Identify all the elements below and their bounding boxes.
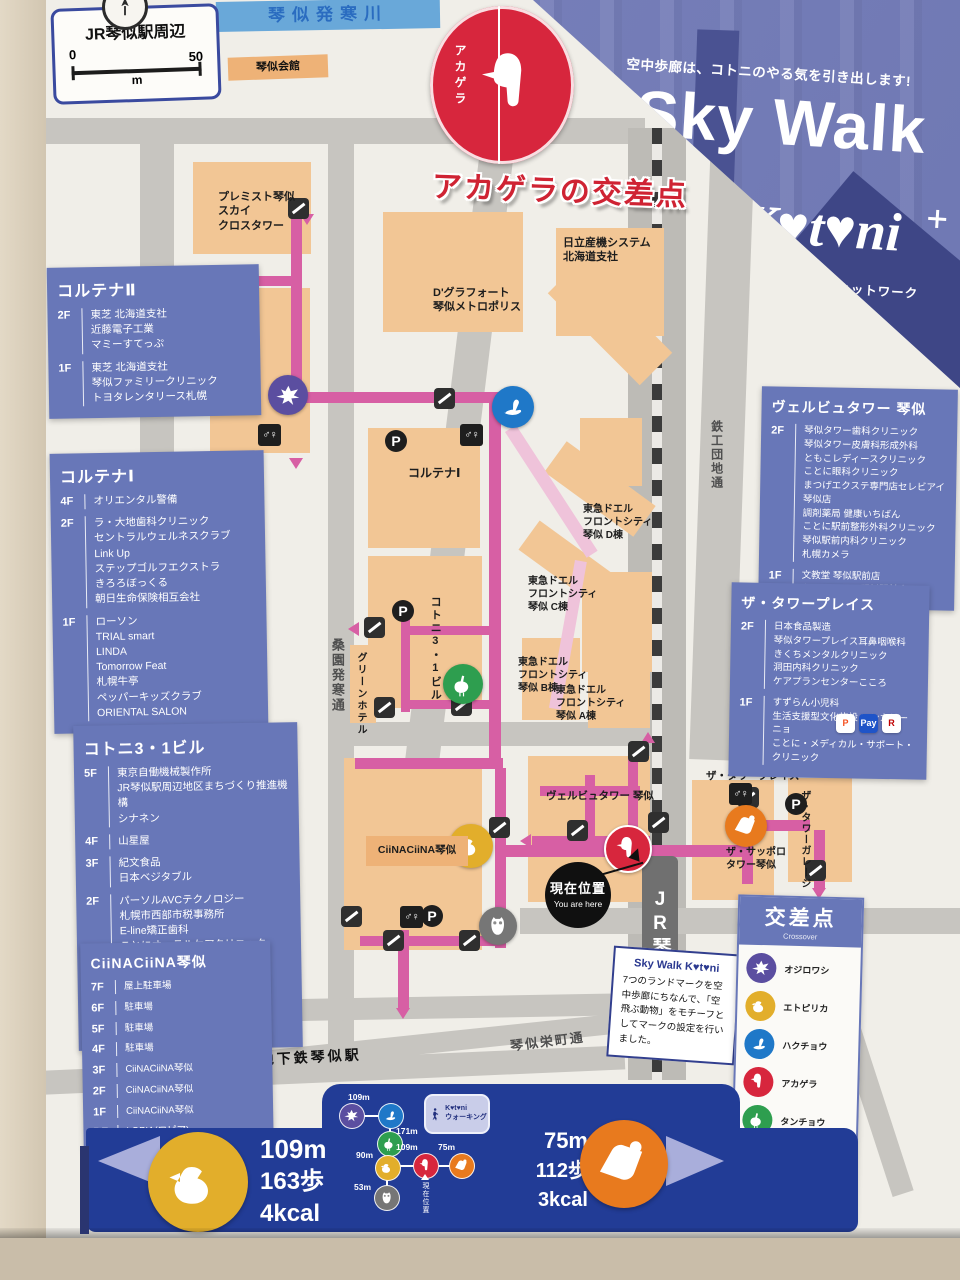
tenant-list: 紀文食品日本ベジタブル [109, 855, 192, 887]
directory-floor-row: 1F東芝 北海道支社琴似ファミリークリニックトヨタレンタリース札幌 [58, 358, 251, 407]
restroom-icon: ♂♀ [729, 783, 752, 805]
tenant-name: ORIENTAL SALON [97, 704, 202, 721]
floor-label: 2F [61, 517, 87, 609]
footer-left-stats: 109m 163歩 4kcal [260, 1136, 327, 1226]
tenant-name: CiiNACiiNA琴似 [125, 1062, 193, 1077]
directory-title: コルテナⅠ [60, 460, 254, 487]
escalator-icon [489, 817, 510, 838]
directory-floor-row: 3F紀文食品日本ベジタブル [85, 853, 290, 887]
street-tekko: 鉄工団地通 [708, 420, 724, 490]
directory-floor-row: 2F日本食品製造琴似タワープレイス耳鼻咽喉科きくちメンタルクリニック洞田内科クリ… [740, 619, 919, 691]
building-cortina1 [368, 428, 480, 548]
label-velbu: ヴェルビュタワー 琴似 [546, 790, 654, 804]
directory-cortina1: コルテナⅠ4Fオリエンタル警備2Fラ・大地歯科クリニックセントラルウェルネスクラ… [50, 450, 269, 734]
footer-ezomomonga-circle [580, 1120, 668, 1208]
floor-label: 2F [769, 423, 795, 561]
tenant-name: CiiNACiiNA琴似 [126, 1083, 194, 1098]
directory-floor-row: 5F駐車場 [92, 1019, 262, 1036]
directory-title: ヴェルビュタワー 琴似 [771, 396, 947, 419]
crossing-headline: アカゲラの交差点 [431, 162, 688, 215]
you-are-here-en: You are here [545, 899, 611, 909]
footer-etopirika-circle [148, 1132, 248, 1232]
legend-subtitle: Crossover [739, 930, 861, 942]
label-tokyu-d: 東急ドエル フロントシティ 琴似 D棟 [583, 503, 652, 542]
tenant-name: セントラルウェルネスクラブ [94, 529, 231, 547]
escalator-icon [364, 617, 385, 638]
legend-item: ハクチョウ [744, 1029, 851, 1062]
floor-label: 6F [91, 1001, 115, 1015]
scale-zero: 0 [69, 47, 77, 62]
tenant-name: トヨタレンタリース札幌 [92, 389, 218, 406]
tenant-list: 駐車場 [116, 1021, 154, 1035]
tenant-list: 屋上駐車場 [115, 979, 172, 994]
floor-label: 2F [57, 308, 82, 354]
label-sapporotower: ザ・サッポロ タワー琴似 [726, 846, 786, 872]
payment-icon: Pay [859, 714, 878, 733]
floor-label: 2F [740, 619, 765, 688]
legend-item-name: ハクチョウ [782, 1038, 827, 1052]
walker-icon [427, 1107, 442, 1122]
akagera-mark-label: アカゲラ [452, 44, 469, 108]
label-clina: CiiNACiiNA琴似 [366, 836, 468, 866]
network-distance: 109m [348, 1092, 370, 1102]
tenant-name: 日本ベジタブル [119, 870, 193, 886]
legend-item-name: アカゲラ [781, 1076, 817, 1090]
puffin-icon [745, 991, 776, 1022]
legend-item-name: エトピリカ [783, 1000, 828, 1014]
tenant-list: 駐車場 [116, 1042, 154, 1056]
directory-title: ザ・タワープレイス [741, 592, 919, 615]
label-tokyu-a: 東急ドエル フロントシティ 琴似 A棟 [556, 684, 625, 723]
tenant-name: パーソルAVCテクノロジー [119, 891, 266, 909]
network-distance: 109m [396, 1142, 418, 1152]
skyway-segment [401, 700, 491, 709]
label-tokyu-c: 東急ドエル フロントシティ 琴似 C棟 [528, 575, 597, 614]
you-are-here-marker: 現在位置 You are here [545, 862, 611, 928]
floor-label: 5F [92, 1022, 116, 1036]
network-node-ezomomonga [449, 1153, 475, 1179]
directory-floor-row: 3FCiiNACiiNA琴似 [92, 1061, 262, 1078]
directory-floor-row: 2F琴似タワー歯科クリニック琴似タワー皮膚科形成外科ともこレディースクリニックこ… [769, 423, 947, 564]
tenant-name: 駐車場 [125, 1042, 154, 1056]
right-distance: 75m [508, 1130, 588, 1152]
tenant-name: 東芝 北海道支社 [90, 307, 167, 324]
street-soen: 桑園発寒通 [328, 638, 345, 713]
legend-header: 交差点 Crossover [739, 896, 862, 947]
directory-floor-row: 1FCiiNACiiNA琴似 [93, 1102, 263, 1119]
directory-floor-row: 6F駐車場 [91, 998, 261, 1015]
sign-frame-edge [80, 1146, 89, 1234]
floor-label: 3F [92, 1063, 116, 1077]
banner-subtitle: 空中歩廊ネットワーク [783, 275, 919, 302]
label-kotoni-kaikan: 琴似会館 [228, 54, 329, 80]
legend-item: アカゲラ [743, 1067, 850, 1100]
kotoni-walking-badge: K♥t♥ni ウォーキング [424, 1094, 490, 1134]
floor-label: 4F [92, 1042, 116, 1056]
restroom-icon: ♂♀ [258, 424, 281, 446]
directory-floor-row: 2Fラ・大地歯科クリニックセントラルウェルネスクラブLink Upステップゴルフ… [61, 514, 257, 609]
legend-item: オジロワシ [746, 953, 853, 986]
legend-title: 交差点 [739, 900, 862, 933]
skyway-segment [291, 214, 302, 398]
floor-label: 1F [93, 1105, 117, 1119]
directory-towerplace: ザ・タワープレイス2F日本食品製造琴似タワープレイス耳鼻咽喉科きくちメンタルクリ… [728, 582, 929, 779]
eagle-icon [746, 953, 777, 984]
tenant-list: 日本食品製造琴似タワープレイス耳鼻咽喉科きくちメンタルクリニック洞田内科クリニッ… [764, 620, 906, 691]
directory-floor-row: 4F山星屋 [85, 831, 289, 850]
left-kcal: 4kcal [260, 1202, 327, 1226]
escalator-icon [648, 812, 669, 833]
crossing-node-hakucho [492, 386, 534, 428]
tenant-name: 札幌カメラ [802, 548, 945, 564]
network-distance: 171m [396, 1126, 418, 1136]
tenant-name: 朝日生命保険相互会社 [95, 590, 232, 608]
akagera-mark: アカゲラ [430, 6, 574, 164]
label-dgrafort: D'グラフォート 琴似メトロポリス [433, 286, 521, 315]
network-node-ezoshimafukuro [374, 1185, 400, 1211]
tenant-name: JR琴似駅周辺地区まちづくり推進機構 [117, 778, 289, 811]
payment-icons: PPayR [836, 714, 901, 733]
tenant-name: 紀文食品 [118, 855, 192, 871]
crossing-node-tancho [443, 664, 483, 704]
tenant-name: マミーすてっぷ [91, 337, 168, 354]
floor-label: 5F [84, 766, 109, 827]
skyway-segment [287, 392, 517, 403]
network-you-are-here: 現在位置 [420, 1182, 430, 1214]
label-premist: プレミスト琴似 スカイ クロスタワー [218, 190, 295, 233]
swan-icon [744, 1029, 775, 1060]
tenant-name: まつげエクステ専門店セレビアイ琴似店 [803, 479, 946, 509]
escalator-icon [628, 741, 649, 762]
skywalk-note-box: Sky Walk K♥t♥ni 7つのランドマークを空中歩廊にちなんで、「空飛ぶ… [606, 946, 741, 1065]
signboard-photo: P P P P ♂♀ ♂♀ ♂♀ ♂♀ プレミスト琴似 スカイ クロスタワー 日… [0, 0, 960, 1280]
skyway-arrow [289, 458, 303, 469]
right-steps: 112歩 [508, 1161, 588, 1181]
directory-floor-row: 2F東芝 北海道支社近藤電子工業マミーすてっぷ [57, 305, 250, 354]
escalator-icon [459, 930, 480, 951]
escalator-icon [341, 906, 362, 927]
left-steps: 163歩 [260, 1170, 327, 1194]
right-kcal: 3kcal [508, 1190, 588, 1210]
directory-floor-row: 4F駐車場 [92, 1040, 262, 1057]
floor-label: 1F [62, 615, 88, 722]
directory-cortina2: コルテナⅡ2F東芝 北海道支社近藤電子工業マミーすてっぷ1F東芝 北海道支社琴似… [47, 264, 262, 419]
tenant-list: 山星屋 [109, 834, 150, 850]
restroom-icon: ♂♀ [460, 424, 483, 446]
woodpecker-icon [470, 24, 552, 144]
directory-title: コトニ3・1ビル [83, 732, 287, 760]
parking-icon: P [385, 430, 407, 452]
legend-item: エトピリカ [745, 991, 852, 1024]
tenant-name: ケアプランセンターこころ [773, 675, 905, 691]
banner-brand-logo: K♥t♥ni [739, 192, 903, 264]
tenant-name: 屋上駐車場 [124, 979, 172, 994]
escalator-icon [374, 697, 395, 718]
wall-bottom [0, 1238, 960, 1280]
floor-label: 1F [739, 695, 764, 764]
escalator-icon [383, 930, 404, 951]
floor-label: 3F [85, 856, 110, 887]
tenant-list: 東芝 北海道支社近藤電子工業マミーすてっぷ [81, 307, 167, 354]
scale-bar: 0 50 m [71, 55, 202, 90]
skyway-segment [401, 626, 491, 635]
directory-floor-row: 5F東京自働機械製作所JR琴似駅周辺地区まちづくり推進機構シナネン [84, 763, 289, 827]
tenant-list: 駐車場 [115, 1000, 153, 1014]
walking-badge-label: K♥t♥ni ウォーキング [445, 1105, 487, 1123]
label-towergarage: ザ・タワーガレージ [798, 790, 811, 889]
label-kotoni31: コトニ3・1ビル [428, 596, 442, 702]
directory-title: CiiNACiiNA琴似 [90, 951, 260, 974]
woodpecker-icon [743, 1067, 774, 1098]
tenant-list: CiiNACiiNA琴似 [116, 1062, 193, 1077]
crossing-node-ezoshimafukuro [479, 907, 517, 945]
payment-icon: P [836, 714, 855, 733]
directory-clina: CiiNACiiNA琴似7F屋上駐車場6F駐車場5F駐車場4F駐車場3FCiiN… [80, 940, 274, 1151]
tenant-list: オリエンタル警備 [84, 493, 177, 510]
tenant-list: CiiNACiiNA琴似 [117, 1083, 194, 1098]
directory-velbu: ヴェルビュタワー 琴似2F琴似タワー歯科クリニック琴似タワー皮膚科形成外科ともこ… [758, 386, 958, 611]
tenant-list: 東芝 北海道支社琴似ファミリークリニックトヨタレンタリース札幌 [82, 359, 218, 407]
floor-label: 1F [58, 361, 83, 407]
left-distance: 109m [260, 1136, 327, 1162]
label-greenhotel: グリーンホテル [354, 652, 367, 736]
legend-item-name: オジロワシ [784, 962, 829, 976]
network-node-etopirika [375, 1155, 401, 1181]
tenant-name: 山星屋 [118, 834, 150, 850]
skyway-segment [355, 758, 503, 769]
escalator-icon [434, 388, 455, 409]
network-you-are-here-tip [421, 1174, 429, 1180]
payment-icon: R [882, 714, 901, 733]
network-distance: 75m [438, 1142, 455, 1152]
tenant-list: 東京自働機械製作所JR琴似駅周辺地区まちづくり推進機構シナネン [108, 763, 289, 827]
tenant-name: 駐車場 [125, 1021, 154, 1035]
you-are-here-ja: 現在位置 [545, 878, 611, 897]
tenant-list: CiiNACiiNA琴似 [117, 1103, 194, 1118]
footer-right-stats: 75m 112歩 3kcal [508, 1130, 588, 1210]
floor-label: 7F [91, 980, 115, 994]
network-node-ojirowashi [339, 1103, 365, 1129]
tenant-list: ローソンTRIAL smartLINDATomorrow Feat札幌牛亭ペッパ… [86, 613, 202, 722]
sign-shadow [0, 1228, 960, 1238]
floor-label: 4F [85, 834, 109, 850]
label-hitachi: 日立産機システム 北海道支社 [563, 236, 651, 265]
crossing-node-ojirowashi [268, 375, 308, 415]
note-body: 7つのランドマークを空中歩廊にちなんで、「空飛ぶ動物」をモチーフとしてマークの設… [618, 973, 729, 1054]
wall-left [0, 0, 46, 1280]
directory-floor-row: 1FローソンTRIAL smartLINDATomorrow Feat札幌牛亭ペ… [62, 612, 258, 722]
tenant-list: ラ・大地歯科クリニックセントラルウェルネスクラブLink Upステップゴルフエク… [85, 514, 232, 608]
tenant-name: 近藤電子工業 [91, 322, 168, 339]
directory-floor-row: 2FCiiNACiiNA琴似 [93, 1081, 263, 1098]
note-title: Sky Walk K♥t♥ni [623, 956, 730, 975]
tenant-name: 駐車場 [124, 1000, 153, 1014]
directory-floor-row: 7F屋上駐車場 [91, 978, 261, 995]
tenant-name: ペッパーキッズクラブ [97, 689, 202, 706]
skyway-arrow [348, 622, 359, 636]
floor-label: 4F [60, 494, 84, 510]
skyway-arrow [396, 1008, 410, 1019]
tenant-name: ステップゴルフエクストラ [94, 560, 231, 578]
tenant-name: ことに・メディカル・サポート・クリニック [772, 737, 917, 767]
river-label: 琴似発寒川 [216, 0, 440, 32]
skyway-arrow [520, 834, 531, 848]
restroom-icon: ♂♀ [400, 906, 423, 928]
floor-label: 2F [93, 1084, 117, 1098]
tenant-list: 琴似タワー歯科クリニック琴似タワー皮膚科形成外科ともこレディースクリニックことに… [793, 424, 947, 564]
tenant-name: CiiNACiiNA琴似 [126, 1103, 194, 1118]
legend-item-name: タンチョウ [780, 1114, 825, 1128]
network-distance: 90m [356, 1150, 373, 1160]
parking-icon: P [421, 905, 443, 927]
parking-icon: P [392, 600, 414, 622]
crossing-node-ezomomonga [725, 805, 767, 847]
tenant-name: オリエンタル警備 [93, 493, 177, 510]
label-cortina1: コルテナⅠ [408, 466, 460, 482]
direction-triangle-right [666, 1136, 724, 1186]
network-distance: 53m [354, 1182, 371, 1192]
directory-floor-row: 4Fオリエンタル警備 [60, 491, 254, 510]
directory-title: コルテナⅡ [57, 274, 249, 301]
escalator-icon [567, 820, 588, 841]
scale-unit: m [131, 73, 142, 87]
sparkle-icon [927, 209, 946, 228]
tenant-name: シナネン [118, 809, 289, 827]
